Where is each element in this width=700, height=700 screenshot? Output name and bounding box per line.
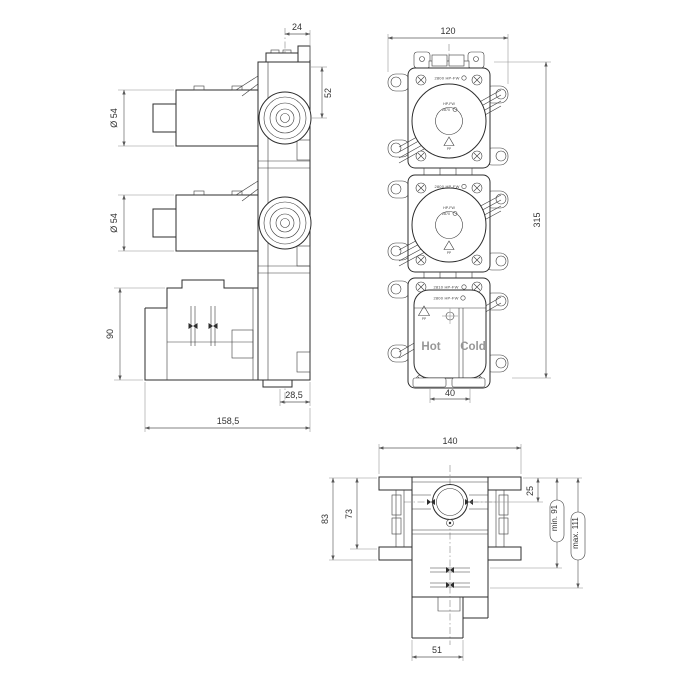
dim-bottom-51: 51 — [412, 640, 463, 661]
dim-side-90: 90 — [105, 288, 165, 380]
dim-bottom-25: 25 — [470, 478, 582, 502]
dial-marking: 2870 — [442, 108, 450, 112]
dim-label: max. 111 — [571, 517, 580, 549]
outlet-notch — [438, 597, 460, 611]
dim-side-52: 52 — [311, 67, 333, 118]
box3-marking-row1: 2810 HP-FW — [433, 285, 458, 290]
dim-front-315: 315 — [494, 62, 551, 378]
dim-bottom-73: 73 — [329, 478, 377, 549]
side-bottom-stub — [263, 380, 292, 387]
dim-label: 40 — [445, 388, 455, 398]
dim-label: Ø 54 — [109, 213, 119, 233]
cold-label: Cold — [460, 341, 486, 353]
hot-label: Hot — [421, 341, 440, 353]
side-port-circle-1 — [259, 92, 311, 144]
box1-marking: 2800 HP-FW — [434, 76, 459, 81]
valve-box-2: 2800 HP-FW HP-FW 2870 PP — [388, 175, 508, 278]
bottom-view: 140 73 83 25 min. 91 m — [320, 436, 585, 661]
dim-label: 158,5 — [217, 416, 240, 426]
dim-label: 24 — [292, 22, 302, 32]
dim-label: 25 — [525, 486, 535, 496]
dim-label: Ø 54 — [109, 108, 119, 128]
technical-drawing-page: 24 52 Ø 54 Ø 54 90 — [0, 0, 700, 700]
thermostat-dial: HP-FW 2870 PP — [412, 188, 486, 262]
dim-front-40: 40 — [430, 388, 470, 403]
side-supply-block — [145, 280, 258, 380]
side-view: 24 52 Ø 54 Ø 54 90 — [105, 22, 333, 432]
pp-symbol: PP — [447, 251, 451, 255]
screw-bowtie-icon — [209, 323, 218, 329]
side-port-circle-2 — [259, 197, 311, 249]
pp-symbol: PP — [422, 317, 426, 321]
thermostat-dial: HP-FW 2870 PP — [412, 84, 486, 158]
dim-label: 315 — [532, 212, 542, 227]
box3-marking-row2: 2800 HP-FW — [433, 296, 458, 301]
dim-label: 51 — [432, 645, 442, 655]
bottom-right-flange — [488, 477, 521, 560]
dim-label: 52 — [323, 88, 333, 98]
dim-label: min. 91 — [550, 504, 559, 531]
front-view: 2800 HP-FW HP-FW 2870 PP — [388, 26, 551, 403]
dim-label: 73 — [344, 509, 354, 519]
dim-label: 120 — [440, 26, 455, 36]
dim-label: 90 — [105, 329, 115, 339]
supply-chamber: 2800 HP-FW PP Hot Cold — [414, 290, 486, 378]
cold-inlet-stub — [452, 378, 485, 387]
pp-symbol: PP — [447, 147, 451, 151]
dial-marking: 2870 — [442, 212, 450, 216]
valve-dimension-drawing: 24 52 Ø 54 Ø 54 90 — [0, 0, 700, 700]
bottom-port-circle — [433, 485, 468, 520]
dim-label: 140 — [442, 436, 457, 446]
dim-label: 28,5 — [285, 390, 303, 400]
hot-inlet-stub — [413, 378, 446, 387]
screw-bowtie-icon — [189, 323, 198, 329]
dial-marking: HP-FW — [443, 102, 455, 106]
side-top-cap — [266, 46, 310, 62]
dial-marking: HP-FW — [443, 206, 455, 210]
valve-box-1: 2800 HP-FW HP-FW 2870 PP — [388, 68, 508, 175]
valve-box-3: 2810 HP-FW 2800 HP-FW PP Hot — [388, 278, 508, 388]
bottom-left-flange — [379, 477, 412, 560]
dim-label: 83 — [320, 514, 330, 524]
